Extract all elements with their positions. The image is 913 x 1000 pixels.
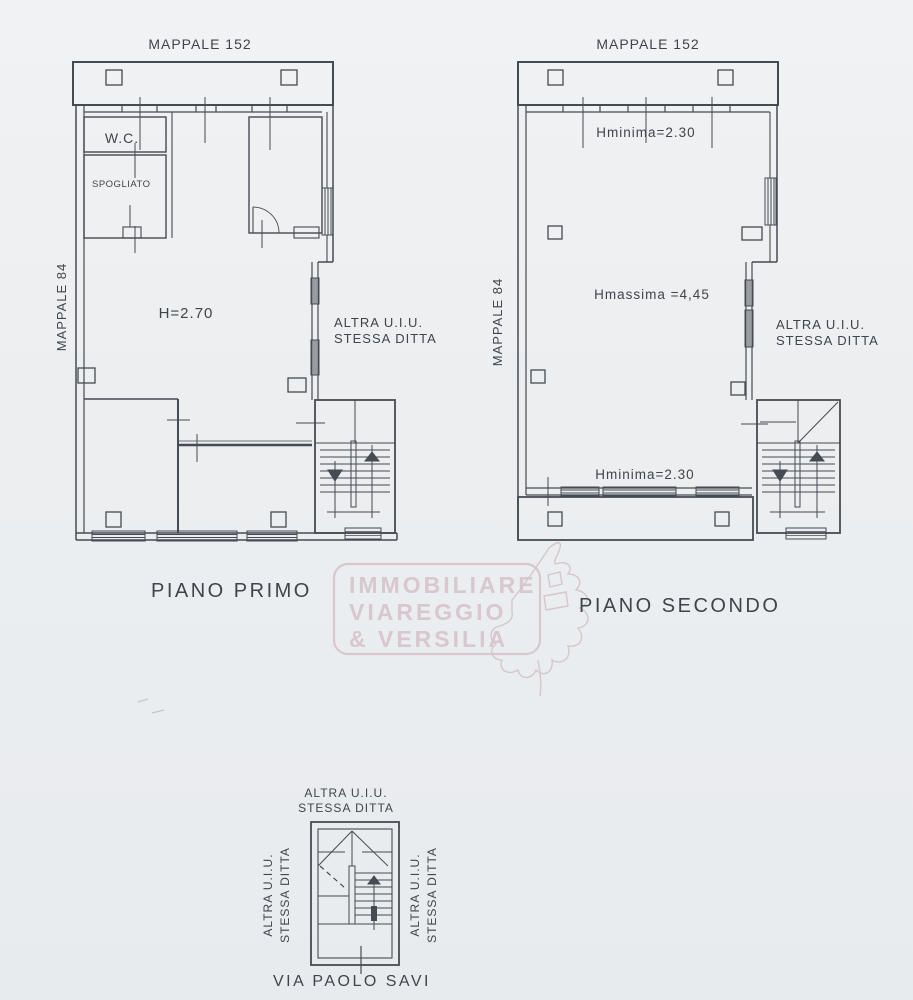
ground-stairwell-labels: ALTRA U.I.U. STESSA DITTA ALTRA U.I.U. S… [261,786,439,990]
street-label: VIA PAOLO SAVI [273,973,431,990]
stairwell-top-label-1: ALTRA U.I.U. [304,786,387,800]
plan1-bottom-windows [92,512,297,541]
pillar [718,70,733,85]
pillar [288,378,306,392]
plan1-title: MAPPALE 152 [148,36,251,52]
plan2-hmin-top-label: Hminima=2.30 [596,125,695,140]
plan2-staircase [741,400,840,539]
plan2-caption: PIANO SECONDO [579,595,780,617]
stairwell-left-label-1: ALTRA U.I.U. [261,853,275,936]
pillar [106,70,122,85]
pillar [281,70,297,85]
stairwell-right-label-2: STESSA DITTA [425,847,439,943]
scan-artifacts [138,699,164,713]
first-floor-labels: MAPPALE 152 MAPPALE 84 W.C. SPOGLIATO H=… [54,36,437,602]
plan1-right-label-1: ALTRA U.I.U. [334,315,423,330]
floor-plan-drawing: IMMOBILIARE VIAREGGIO & VERSILIA [0,0,913,1000]
plan1-bottom-partitions [78,368,325,533]
pillar [742,227,762,240]
pillar [271,512,286,527]
stair-dashed-line [320,866,345,888]
stairwell-winders [318,831,392,866]
plan1-right-label-2: STESSA DITTA [334,331,437,346]
spogliato-label: SPOGLIATO [92,179,151,190]
pillar [731,382,745,395]
pillar [78,368,95,383]
plan1-height-label: H=2.70 [159,305,214,322]
ground-stairwell-plan [311,822,399,974]
plan2-hmax-label: Hmassima =4,45 [594,287,710,302]
stair-direction-marker [371,906,377,921]
watermark-line1: IMMOBILIARE [349,572,537,598]
plan1-caption: PIANO PRIMO [151,580,312,602]
stairwell-top-label-2: STESSA DITTA [298,801,394,815]
agency-watermark: IMMOBILIARE VIAREGGIO & VERSILIA [334,543,588,696]
pillar [715,512,729,526]
wc-label: W.C. [105,130,139,146]
pillar [548,226,562,239]
plan1-staircase [315,400,395,539]
pillar [548,512,562,526]
plan2-right-label-1: ALTRA U.I.U. [776,317,865,332]
plan2-balcony [518,62,778,105]
plan1-topright-room [249,117,322,248]
plan2-hmin-bottom-label: Hminima=2.30 [595,467,694,482]
pillar [106,512,121,527]
plan2-title: MAPPALE 152 [596,36,699,52]
spogliato-room [84,155,166,238]
scanned-floor-plan-page: IMMOBILIARE VIAREGGIO & VERSILIA [0,0,913,1000]
plan1-side-label: MAPPALE 84 [54,263,69,352]
plan2-side-label: MAPPALE 84 [490,278,505,367]
plan1-balcony [73,62,333,105]
plan2-pillars [531,226,762,395]
stairwell-left-label-2: STESSA DITTA [278,847,292,943]
pillar [548,70,563,85]
door-swing-arc [253,207,279,233]
plan2-terrace [518,497,753,540]
stairwell-right-label-1: ALTRA U.I.U. [408,853,422,936]
pillar [531,370,545,383]
watermark-line2: VIAREGGIO [349,599,506,625]
fixture [123,227,141,238]
watermark-line3: & VERSILIA [349,626,508,652]
second-floor-labels: MAPPALE 152 MAPPALE 84 Hminima=2.30 Hmas… [490,36,879,617]
plan2-right-label-2: STESSA DITTA [776,333,879,348]
